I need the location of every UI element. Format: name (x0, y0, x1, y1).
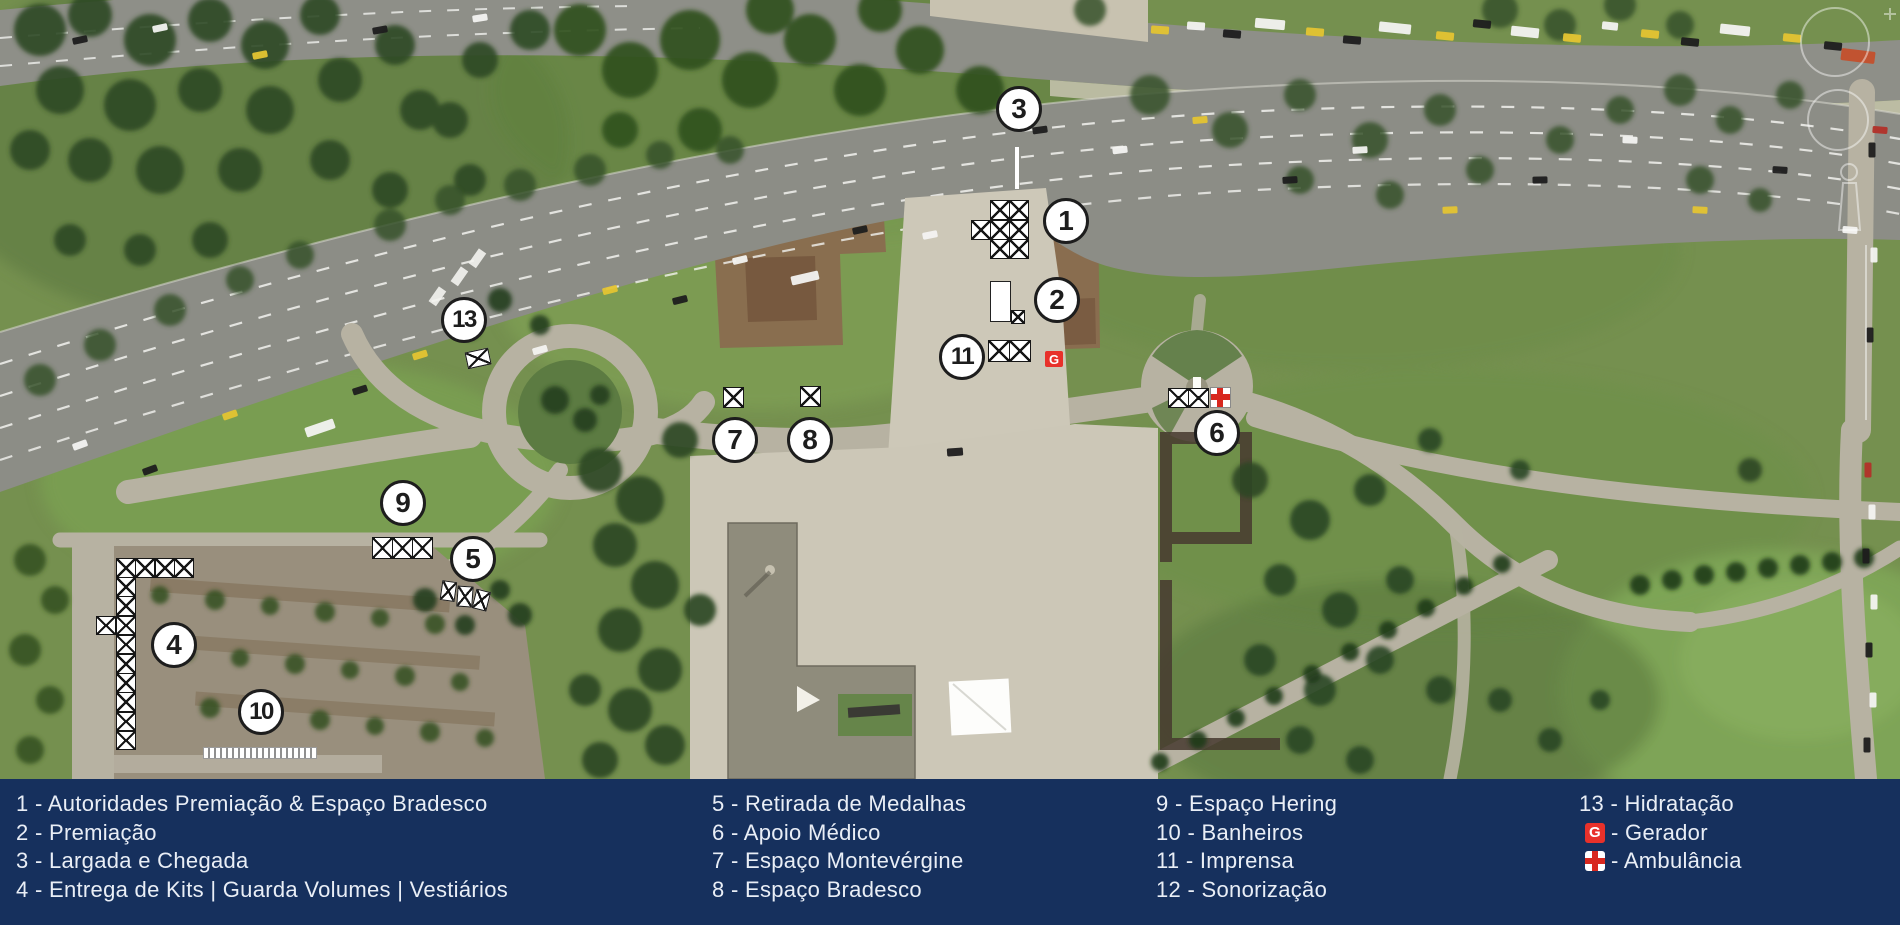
map-marker-7: 7 (712, 417, 758, 463)
map-marker-10: 10 (238, 689, 284, 735)
map-marker-9: 9 (380, 480, 426, 526)
ambulancia-icon (1585, 851, 1605, 871)
legend-item-8: 8 - Espaço Bradesco (712, 876, 966, 905)
map-marker-11: 11 (939, 334, 985, 380)
museum-tent (949, 678, 1012, 735)
legend-item-12: 12 - Sonorização (1156, 876, 1337, 905)
legend-column-1: 1 - Autoridades Premiação & Espaço Brade… (16, 790, 508, 904)
legend-item-13: 13 - Hidratação (1579, 790, 1742, 819)
structure-medalhas-tent-a (440, 580, 457, 601)
structure-medalhas-tent-b (456, 586, 472, 607)
aerial-map: 312131178695410G (0, 0, 1900, 779)
legend-column-2: 5 - Retirada de Medalhas6 - Apoio Médico… (712, 790, 966, 904)
structure-largada-start-line (1015, 147, 1019, 189)
structure-montevergine-tent (723, 387, 743, 407)
structure-premiacao-stage (990, 281, 1011, 322)
gerador-icon: G (1585, 823, 1605, 843)
structure-premiacao-tent (1011, 310, 1024, 323)
legend-item-3: 3 - Largada e Chegada (16, 847, 508, 876)
map-marker-6: 6 (1194, 410, 1240, 456)
structure-apoio-medico-tents (1168, 388, 1208, 408)
structure-banheiros-row (203, 747, 317, 759)
legend-item-10: 10 - Banheiros (1156, 819, 1337, 848)
map-marker-2: 2 (1034, 277, 1080, 323)
legend-column-4: 13 - HidrataçãoG - Gerador - Ambulância (1579, 790, 1742, 876)
legend-item-ambulancia: - Ambulância (1579, 847, 1742, 876)
legend-item-gerador: G - Gerador (1579, 819, 1742, 848)
ambulancia-icon (1210, 387, 1231, 408)
structure-autoridades-tents (971, 200, 1028, 259)
gerador-icon: G (1045, 351, 1063, 367)
map-marker-13: 13 (441, 297, 487, 343)
legend-item-2: 2 - Premiação (16, 819, 508, 848)
aerial-map-background (0, 0, 1900, 779)
legend-panel: 1 - Autoridades Premiação & Espaço Brade… (0, 779, 1900, 925)
structure-imprensa-tents (988, 340, 1030, 361)
map-marker-4: 4 (151, 622, 197, 668)
legend-item-1: 1 - Autoridades Premiação & Espaço Brade… (16, 790, 508, 819)
structure-bradesco-tent (800, 386, 820, 406)
legend-item-7: 7 - Espaço Montevérgine (712, 847, 966, 876)
legend-item-5: 5 - Retirada de Medalhas (712, 790, 966, 819)
map-marker-3: 3 (996, 86, 1042, 132)
legend-item-4: 4 - Entrega de Kits | Guarda Volumes | V… (16, 876, 508, 905)
legend-item-6: 6 - Apoio Médico (712, 819, 966, 848)
map-marker-8: 8 (787, 417, 833, 463)
structure-hering-tents (372, 537, 432, 558)
legend-column-3: 9 - Espaço Hering10 - Banheiros11 - Impr… (1156, 790, 1337, 904)
map-marker-5: 5 (450, 536, 496, 582)
legend-item-9: 9 - Espaço Hering (1156, 790, 1337, 819)
map-marker-1: 1 (1043, 198, 1089, 244)
legend-item-11: 11 - Imprensa (1156, 847, 1337, 876)
event-map-flyer: 312131178695410G 1 - Autoridades Premiaç… (0, 0, 1900, 925)
